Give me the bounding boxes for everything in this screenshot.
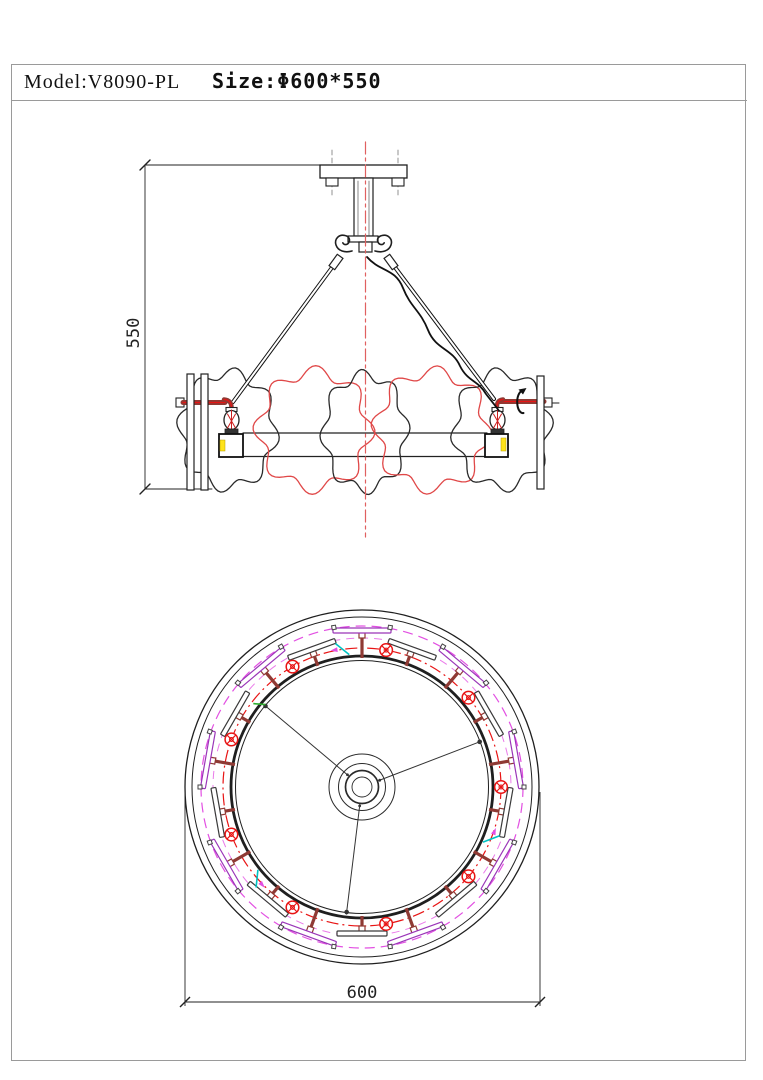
- rim-plate-right: [537, 376, 544, 489]
- dimension-550-label: 550: [124, 318, 144, 349]
- lamp-position-symbol: [462, 691, 475, 704]
- rim-plate-left-outer: [187, 374, 194, 490]
- canopy-plate: [320, 165, 407, 178]
- elevation-view: 550: [124, 142, 559, 537]
- stem-tube: [354, 178, 373, 236]
- rod-clevis-left: [329, 254, 343, 269]
- power-cable: [367, 257, 499, 411]
- plan-view: 600: [180, 610, 545, 1007]
- mount-nut-right: [392, 178, 404, 186]
- plan-ring-structure: [185, 610, 539, 964]
- hanger-hook-left: [336, 235, 352, 252]
- hanging-rods: [233, 254, 494, 402]
- dimension-600-label: 600: [347, 983, 378, 1003]
- contact-right: [501, 438, 506, 451]
- rod-clevis-right: [384, 254, 398, 269]
- rim-plate-left-inner: [201, 374, 208, 490]
- drawing-sheet: Model:V8090-PL Size:Φ600*550 550: [0, 0, 763, 1080]
- ceiling-mount: [320, 150, 407, 252]
- technical-drawing: 550: [0, 0, 763, 1080]
- hanger-hook-right: [375, 235, 391, 252]
- stem-flange: [348, 236, 378, 242]
- contact-left: [220, 440, 225, 451]
- lamp-position-symbol: [380, 644, 393, 657]
- lamp-assembly-left: [176, 398, 243, 457]
- lamp-position-symbol: [225, 733, 238, 746]
- lamp-position-symbol: [380, 918, 393, 931]
- lamp-position-symbol: [495, 781, 508, 794]
- lamp-position-symbol: [462, 870, 475, 883]
- lamp-assembly-right: [485, 388, 559, 457]
- lamp-position-symbol: [225, 828, 238, 841]
- lamp-position-symbol: [286, 901, 299, 914]
- mount-nut-left: [326, 178, 338, 186]
- lamp-position-symbol: [286, 660, 299, 673]
